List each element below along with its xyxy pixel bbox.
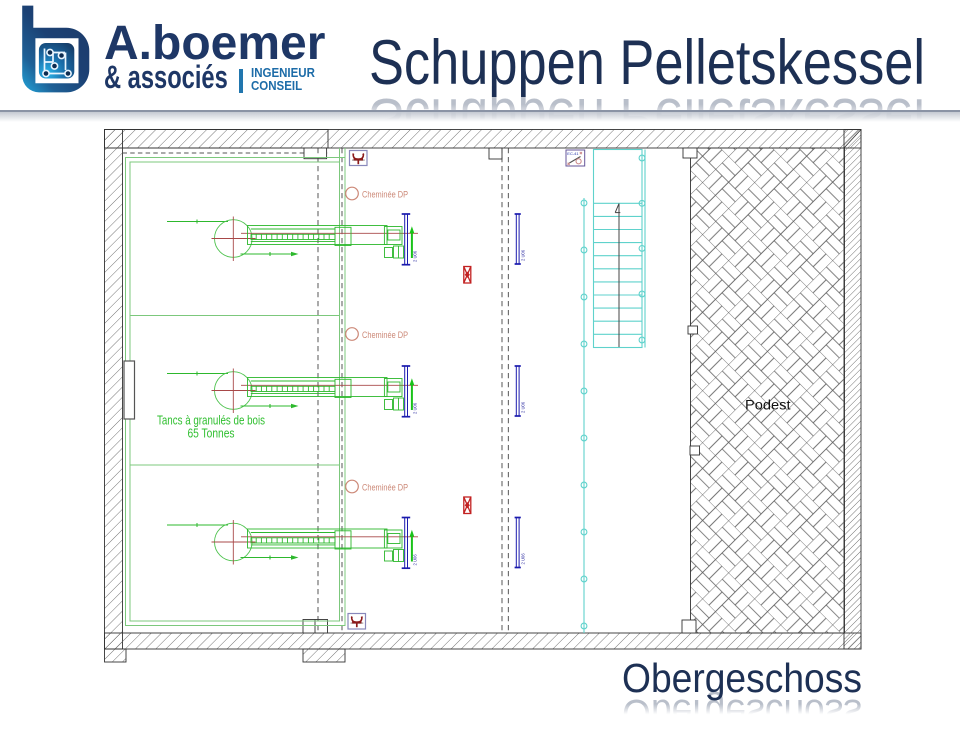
svg-text:EC-41: EC-41 [567,151,579,156]
svg-text:65 Tonnes: 65 Tonnes [188,426,235,441]
svg-text:Cheminée DP: Cheminée DP [362,330,408,341]
svg-text:Cheminée DP: Cheminée DP [362,483,408,494]
svg-text:Cheminée DP: Cheminée DP [362,190,408,201]
